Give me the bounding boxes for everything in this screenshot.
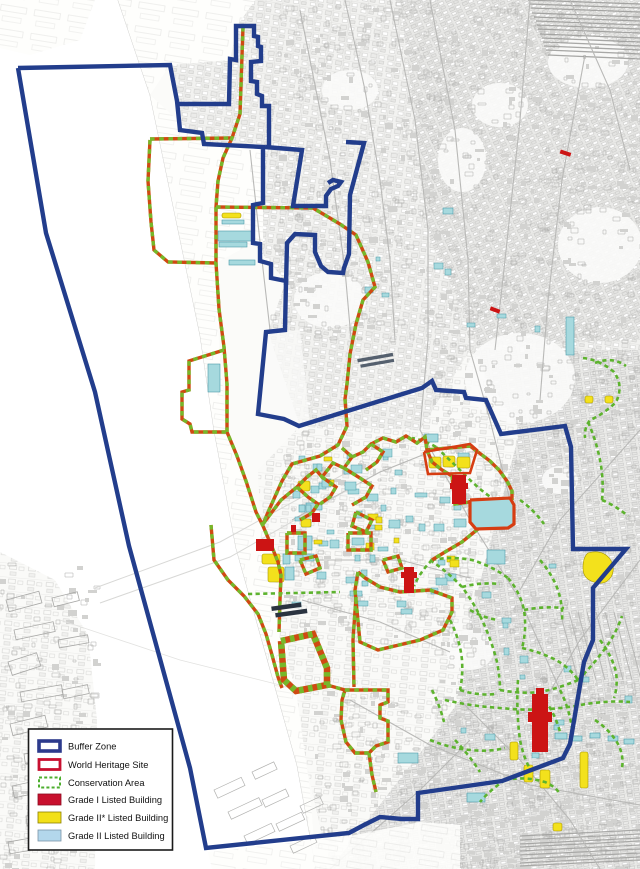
svg-text:Grade II Listed Building: Grade II Listed Building bbox=[68, 831, 165, 841]
svg-text:Grade I Listed Building: Grade I Listed Building bbox=[68, 795, 162, 805]
svg-text:World Heritage Site: World Heritage Site bbox=[68, 760, 148, 770]
svg-text:Buffer Zone: Buffer Zone bbox=[68, 742, 116, 752]
svg-text:Grade II* Listed Building: Grade II* Listed Building bbox=[68, 813, 168, 823]
svg-text:Conservation Area: Conservation Area bbox=[68, 778, 145, 788]
